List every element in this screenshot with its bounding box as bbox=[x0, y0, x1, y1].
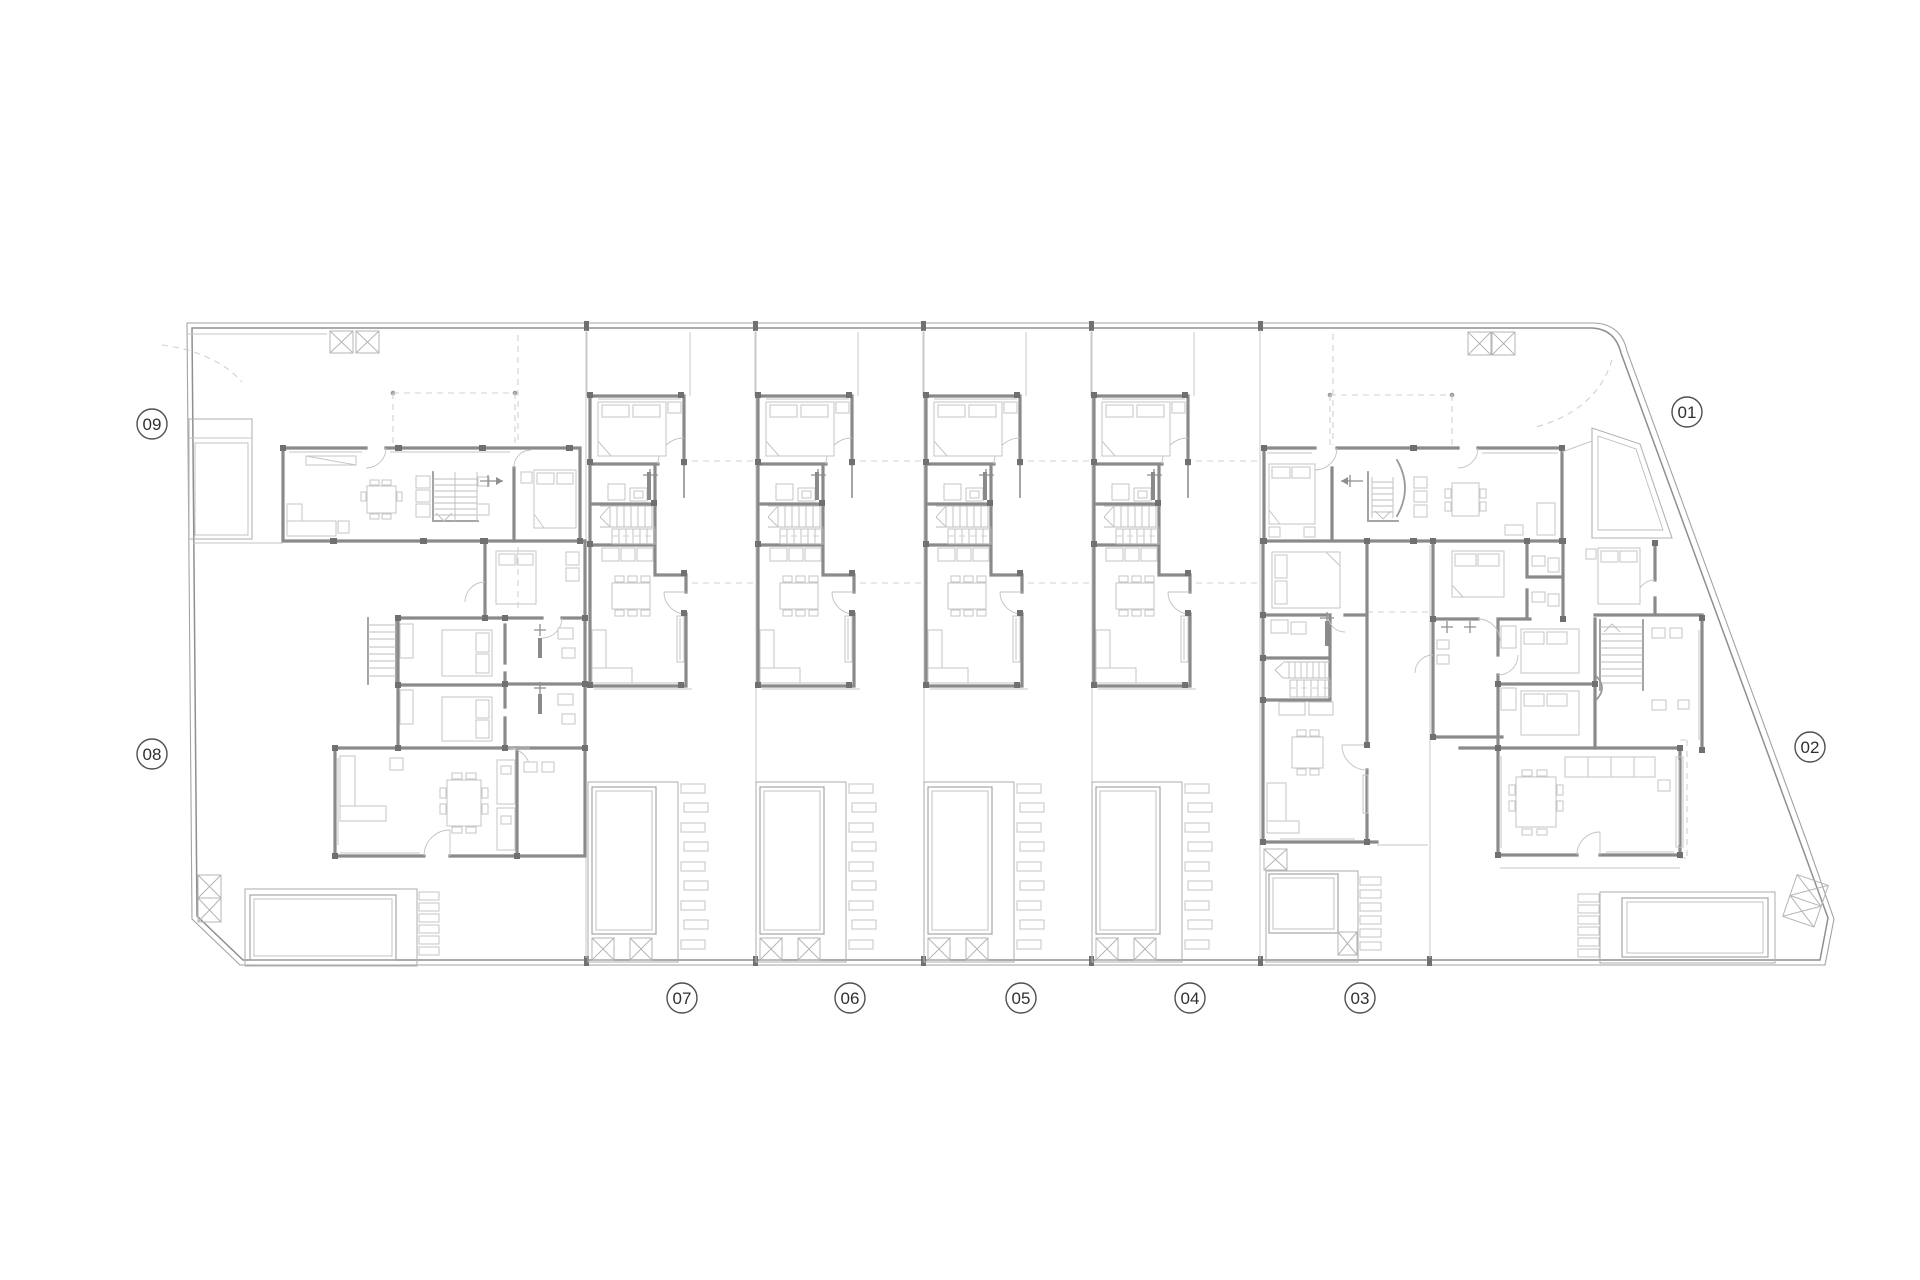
unit-04-house bbox=[1091, 330, 1260, 962]
unit-06-house bbox=[755, 330, 924, 962]
unit-05-label: 05 bbox=[1006, 983, 1036, 1013]
floor-plan-page: 09 08 01 02 07 06 05 04 bbox=[0, 0, 1920, 1280]
unit-07-number: 07 bbox=[673, 989, 692, 1008]
lot-ticks bbox=[584, 321, 1432, 966]
unit-02-number: 02 bbox=[1801, 738, 1820, 757]
unit-01-number: 01 bbox=[1678, 403, 1697, 422]
planter-09 bbox=[189, 419, 283, 543]
pool-08 bbox=[245, 889, 439, 966]
unit-05-house bbox=[923, 330, 1092, 962]
unit-02-label: 02 bbox=[1795, 732, 1825, 762]
unit-06-number: 06 bbox=[841, 989, 860, 1008]
unit-01-label: 01 bbox=[1672, 397, 1702, 427]
unit-07-label: 07 bbox=[667, 983, 697, 1013]
unit-03-house bbox=[1260, 538, 1430, 962]
unit-08-label: 08 bbox=[137, 739, 167, 769]
unit-08-house bbox=[245, 538, 588, 966]
terrace-01 bbox=[1562, 428, 1672, 538]
unit-04-number: 04 bbox=[1181, 989, 1200, 1008]
unit-08-number: 08 bbox=[143, 745, 162, 764]
unit-02-house bbox=[1415, 538, 1775, 963]
unit-03-label: 03 bbox=[1345, 983, 1375, 1013]
unit-09-label: 09 bbox=[137, 409, 167, 439]
unit-06-label: 06 bbox=[835, 983, 865, 1013]
pool-03 bbox=[1264, 849, 1381, 962]
unit-04-label: 04 bbox=[1175, 983, 1205, 1013]
grate-icon bbox=[198, 875, 221, 922]
unit-07-house bbox=[587, 330, 756, 962]
floor-plan-canvas: 09 08 01 02 07 06 05 04 bbox=[0, 0, 1920, 1280]
unit-05-number: 05 bbox=[1012, 989, 1031, 1008]
unit-09-apartment bbox=[189, 335, 585, 544]
unit-03-number: 03 bbox=[1351, 989, 1370, 1008]
pool-02 bbox=[1578, 892, 1775, 963]
unit-09-number: 09 bbox=[143, 415, 162, 434]
